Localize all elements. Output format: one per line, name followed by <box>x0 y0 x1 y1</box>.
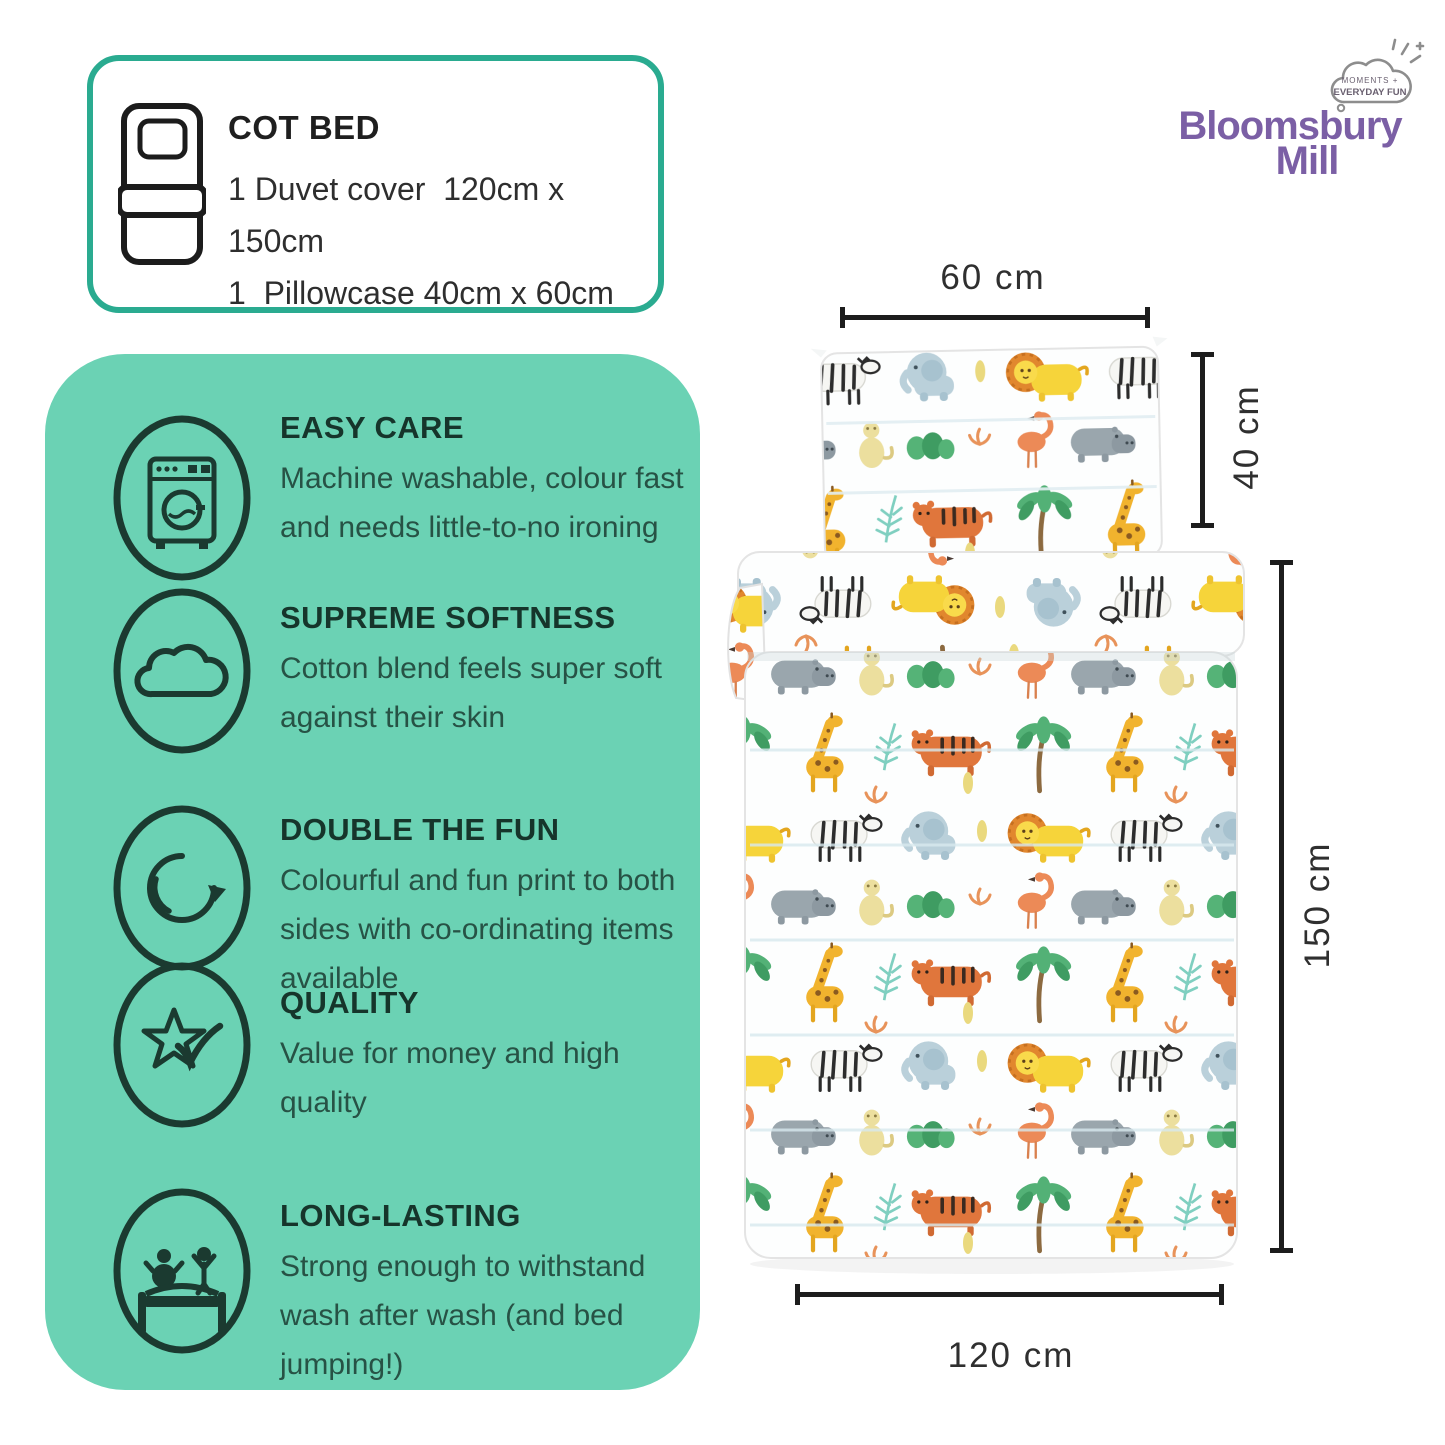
badge-line-1: MOMENTS + <box>1342 76 1399 85</box>
duvet-width-label: 120 cm <box>880 1336 1142 1376</box>
dim-cap <box>1145 307 1150 328</box>
feature-description: Strong enough to withstand wash after wa… <box>280 1242 692 1389</box>
dim-cap <box>795 1284 800 1305</box>
dim-cap <box>1219 1284 1224 1305</box>
feature-title: DOUBLE THE FUN <box>280 812 692 848</box>
dim-cap <box>1191 523 1214 528</box>
brand-logo: Bloomsbury Mill <box>1140 108 1440 178</box>
dim-cap <box>840 307 845 328</box>
dim-cap <box>1270 1248 1293 1253</box>
feature-title: EASY CARE <box>280 410 692 446</box>
feature-title: LONG-LASTING <box>280 1198 692 1234</box>
feature-text: SUPREME SOFTNESS Cotton blend feels supe… <box>280 600 692 742</box>
star-check-icon <box>112 962 252 1128</box>
dim-cap <box>1191 352 1214 357</box>
feature-description: Colourful and fun print to both sides wi… <box>280 856 692 1003</box>
feature-description: Value for money and high quality <box>280 1029 692 1127</box>
feature-title: QUALITY <box>280 985 692 1021</box>
cloud-icon <box>112 588 252 754</box>
spec-pillowcase-line: 1 Pillowcase 40cm x 60cm <box>228 267 658 319</box>
bed-jumping-icon <box>112 1188 252 1354</box>
product-infographic: COT BED 1 Duvet cover 120cm x 150cm 1 Pi… <box>0 0 1445 1445</box>
feature-title: SUPREME SOFTNESS <box>280 600 692 636</box>
features-panel: EASY CARE Machine washable, colour fast … <box>45 354 700 1390</box>
sun-rays-icon <box>1393 40 1423 62</box>
feature-text: LONG-LASTING Strong enough to withstand … <box>280 1198 692 1389</box>
brand-name-line2: Mill <box>1140 144 1440 178</box>
feature-text: EASY CARE Machine washable, colour fast … <box>280 410 692 552</box>
spec-title: COT BED <box>228 109 658 147</box>
feature-text: DOUBLE THE FUN Colourful and fun print t… <box>280 812 692 1003</box>
washing-machine-icon <box>112 415 252 581</box>
pillowcase <box>811 336 1173 563</box>
spec-duvet-line: 1 Duvet cover 120cm x 150cm <box>228 163 658 267</box>
bedding-set-image <box>700 250 1300 1330</box>
feature-text: QUALITY Value for money and high quality <box>280 985 692 1127</box>
cot-bed-icon <box>118 101 206 269</box>
spec-text: COT BED 1 Duvet cover 120cm x 150cm 1 Pi… <box>228 109 658 319</box>
dim-cap <box>1270 560 1293 565</box>
pillow-width-line <box>840 315 1150 320</box>
duvet-width-line <box>795 1292 1224 1297</box>
pillow-width-label: 60 cm <box>893 258 1093 298</box>
duvet-height-line <box>1279 560 1284 1253</box>
feature-description: Cotton blend feels super soft against th… <box>280 644 692 742</box>
spec-box: COT BED 1 Duvet cover 120cm x 150cm 1 Pi… <box>87 55 664 313</box>
pillow-height-line <box>1200 352 1205 528</box>
rotating-arrow-icon <box>112 805 252 971</box>
pillow-height-label: 40 cm <box>1227 362 1267 512</box>
feature-description: Machine washable, colour fast and needs … <box>280 454 692 552</box>
duvet-cover <box>745 652 1237 1258</box>
badge-line-2: EVERYDAY FUN <box>1333 87 1406 98</box>
duvet-height-label: 150 cm <box>1298 825 1338 985</box>
